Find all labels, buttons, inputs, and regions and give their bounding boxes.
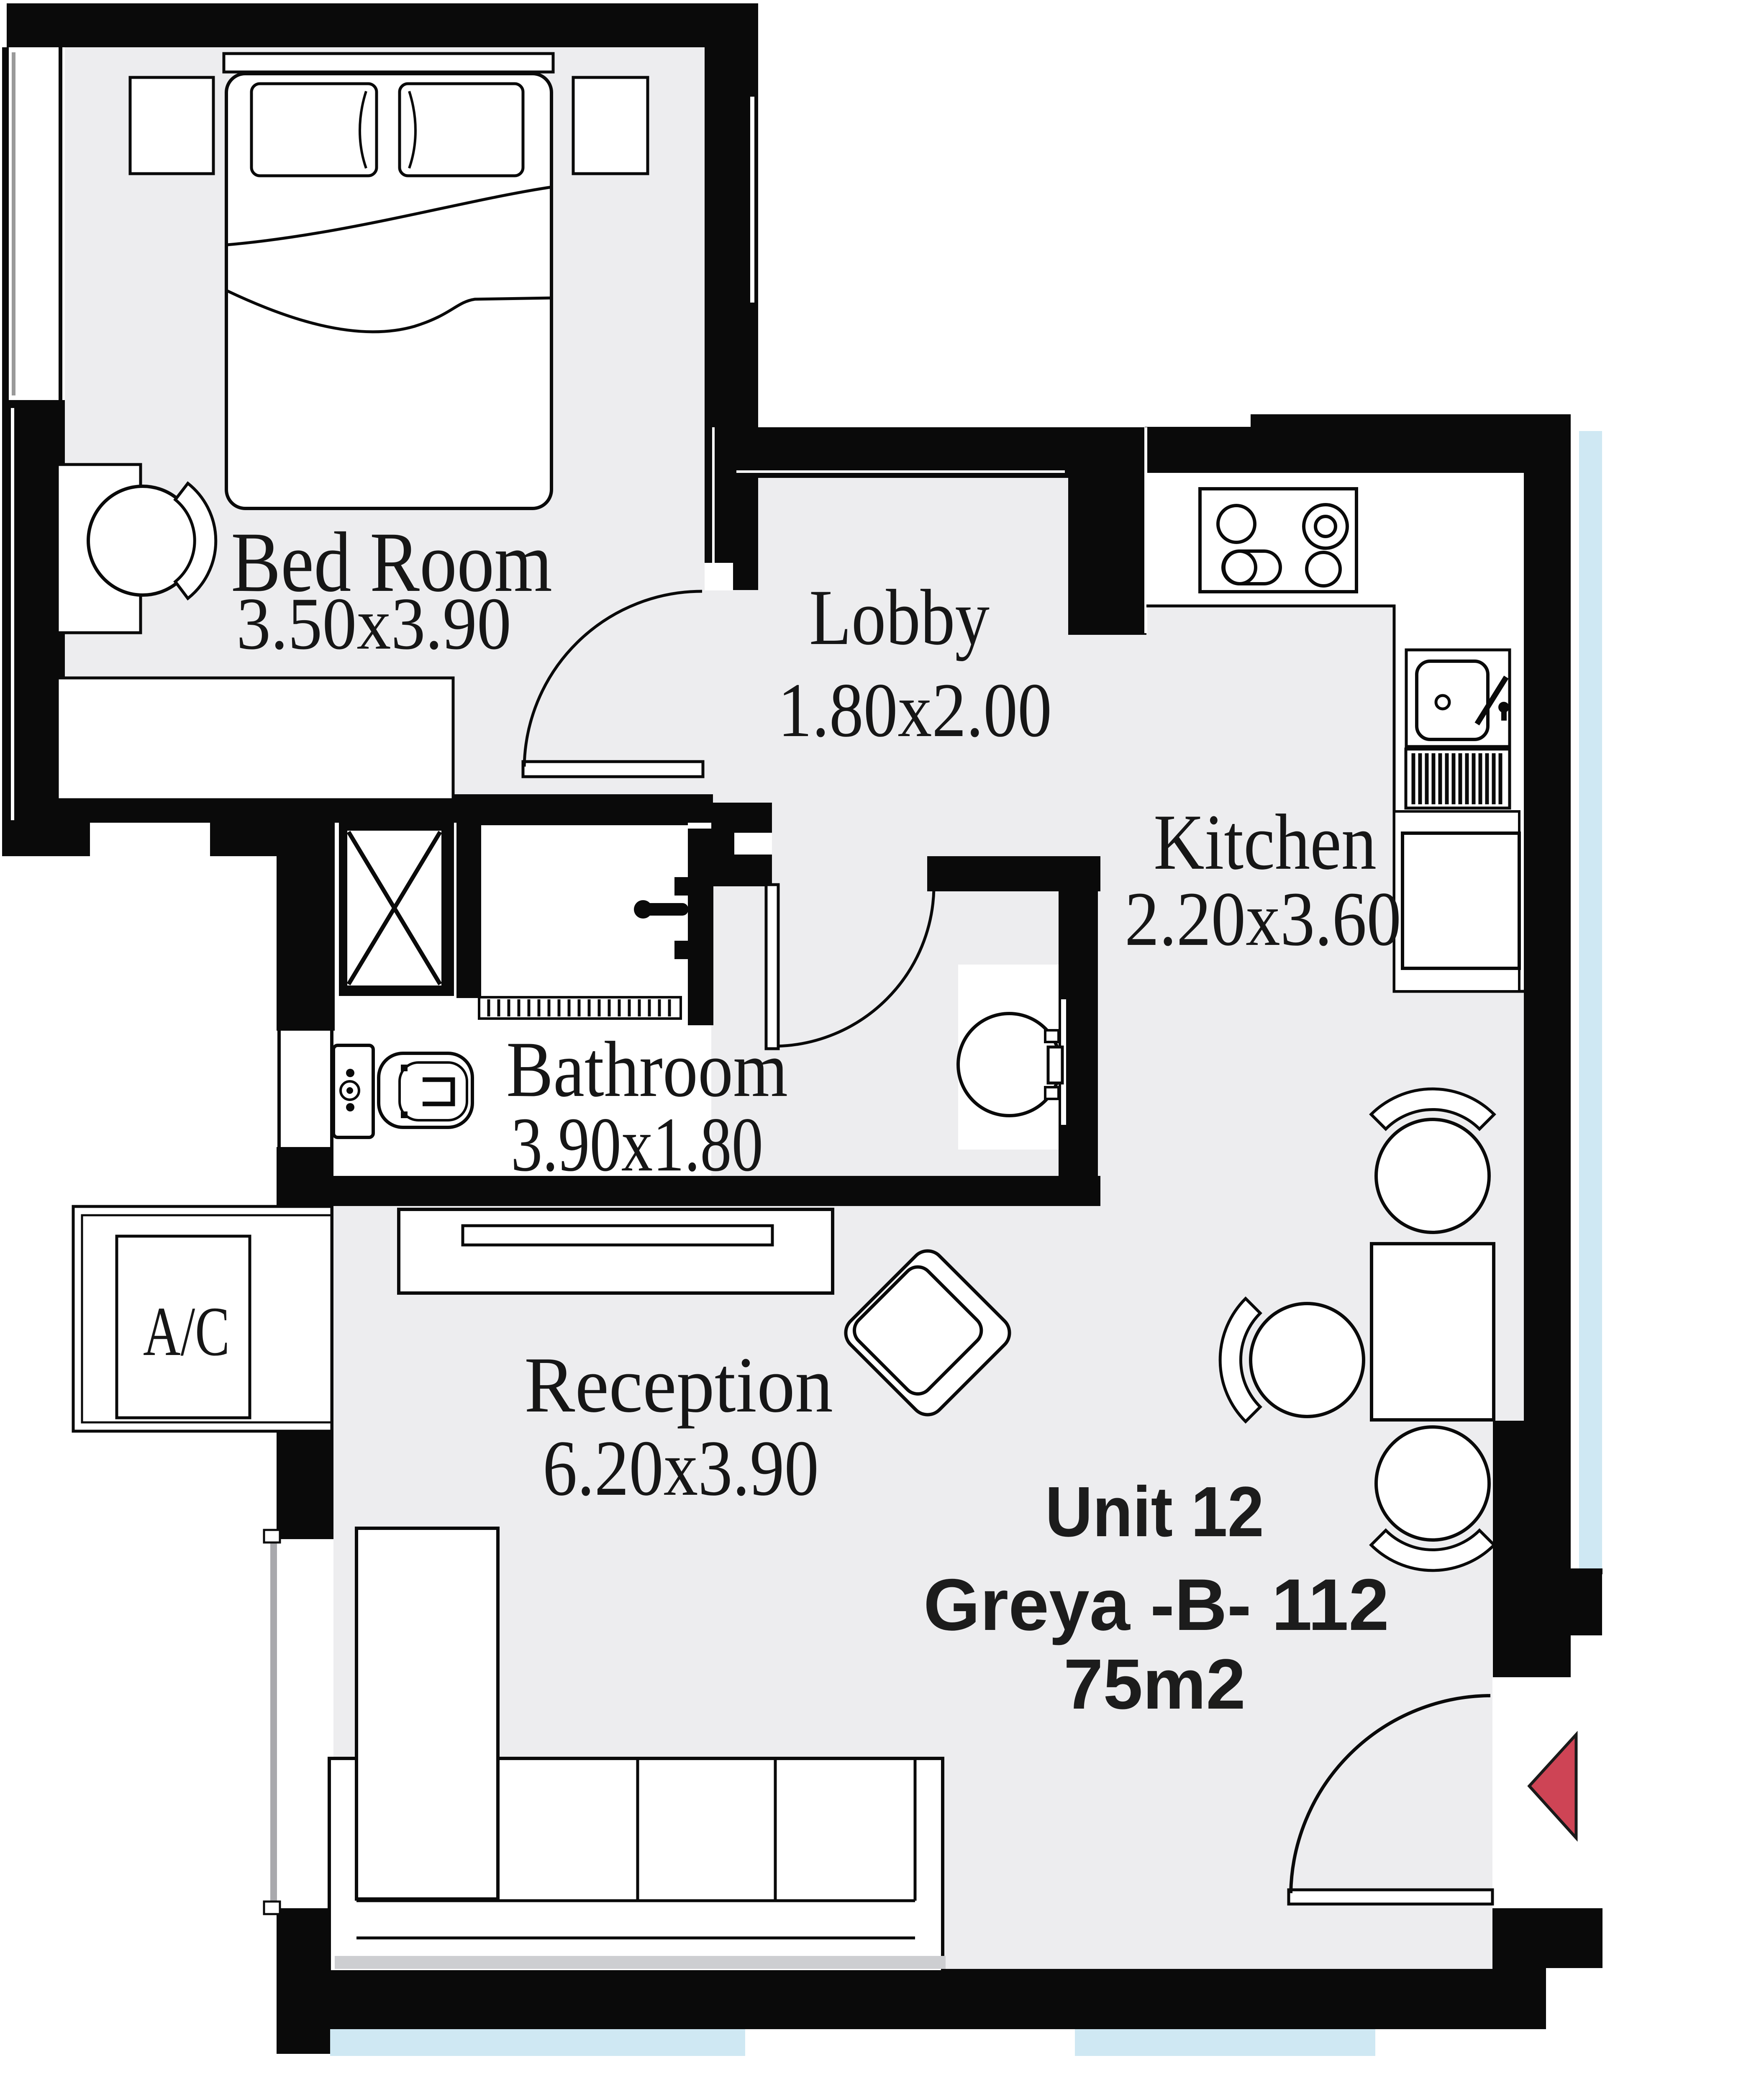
- svg-text:3.50x3.90: 3.50x3.90: [236, 582, 511, 665]
- svg-text:Greya -B- 112: Greya -B- 112: [923, 1564, 1389, 1646]
- svg-text:A/C: A/C: [143, 1293, 230, 1370]
- svg-text:6.20x3.90: 6.20x3.90: [543, 1424, 819, 1512]
- svg-text:Bathroom: Bathroom: [506, 1026, 788, 1114]
- svg-text:75m2: 75m2: [1064, 1645, 1246, 1724]
- svg-text:Lobby: Lobby: [809, 574, 990, 662]
- svg-text:1.80x2.00: 1.80x2.00: [778, 667, 1052, 753]
- svg-text:Kitchen: Kitchen: [1154, 798, 1377, 886]
- svg-text:2.20x3.60: 2.20x3.60: [1125, 876, 1401, 962]
- svg-text:3.90x1.80: 3.90x1.80: [511, 1102, 763, 1188]
- svg-text:Unit 12: Unit 12: [1045, 1472, 1264, 1552]
- svg-text:Reception: Reception: [524, 1341, 833, 1429]
